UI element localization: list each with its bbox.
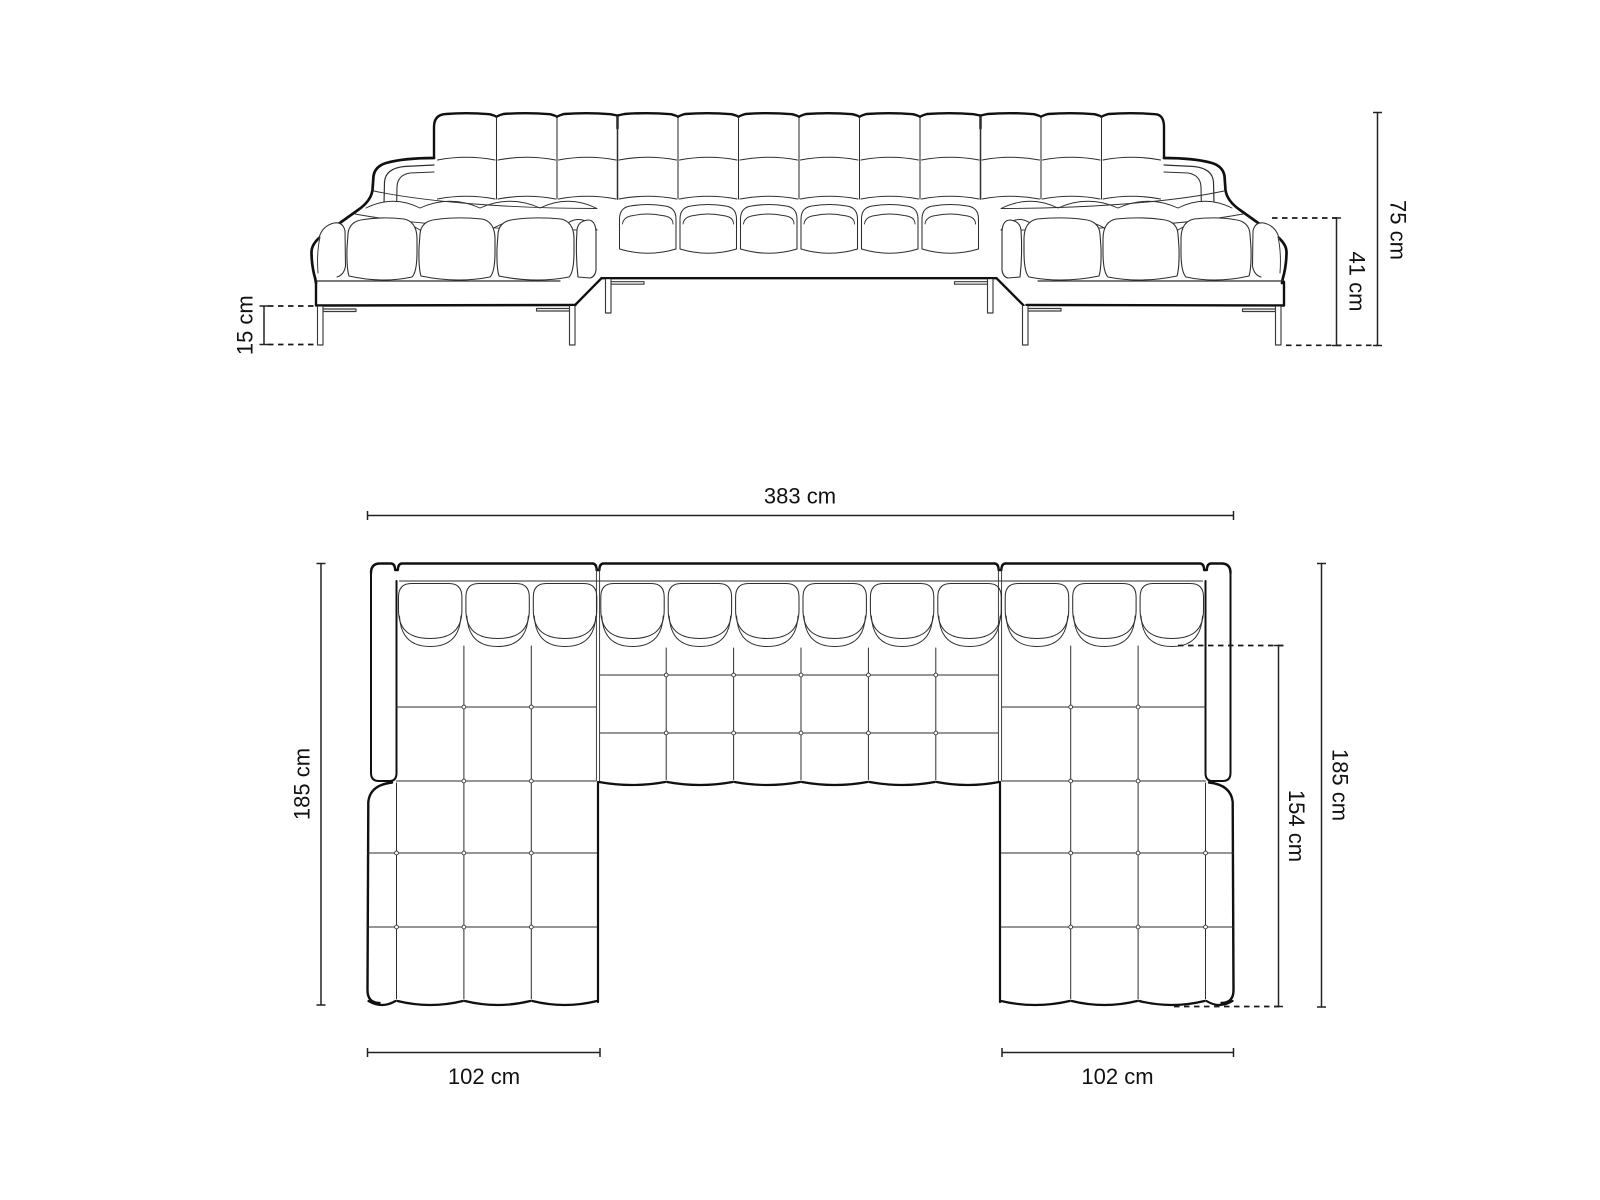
- svg-text:75 cm: 75 cm: [1386, 200, 1411, 260]
- svg-text:102 cm: 102 cm: [1081, 1064, 1153, 1089]
- svg-text:15 cm: 15 cm: [233, 295, 258, 355]
- svg-text:185 cm: 185 cm: [290, 748, 315, 820]
- svg-text:102 cm: 102 cm: [448, 1064, 520, 1089]
- svg-text:383 cm: 383 cm: [764, 484, 836, 509]
- svg-text:154 cm: 154 cm: [1284, 790, 1309, 862]
- svg-text:41 cm: 41 cm: [1345, 252, 1370, 312]
- svg-text:185 cm: 185 cm: [1328, 749, 1353, 821]
